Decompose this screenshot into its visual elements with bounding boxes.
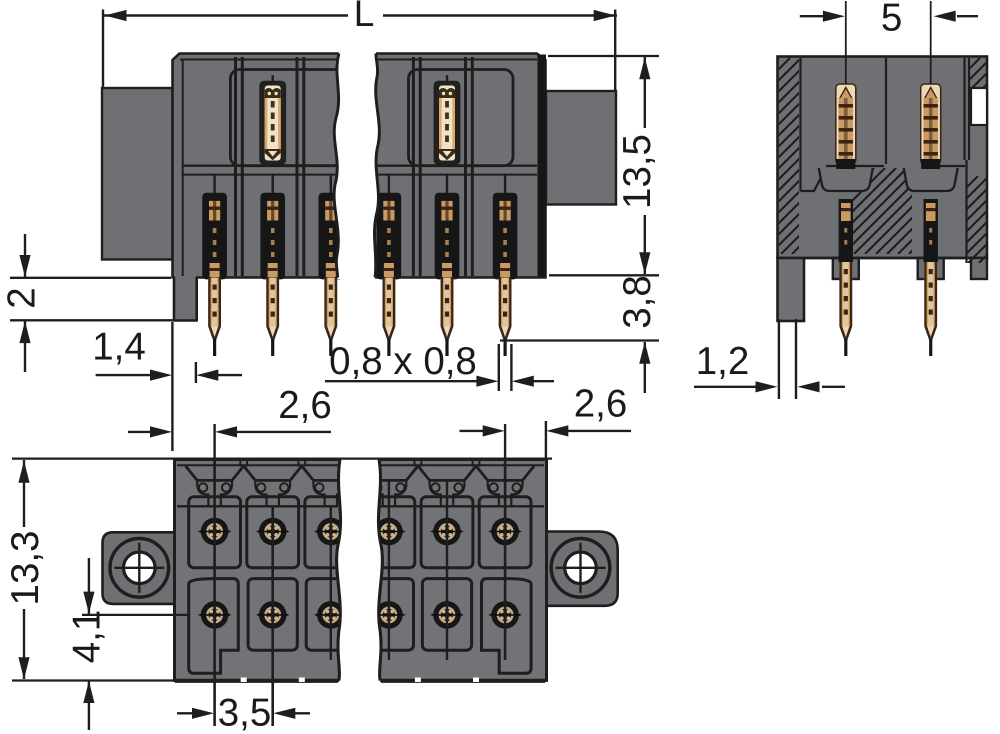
svg-text:1,2: 1,2 bbox=[696, 340, 750, 383]
svg-text:13,5: 13,5 bbox=[616, 134, 659, 209]
svg-text:3,8: 3,8 bbox=[616, 275, 659, 329]
svg-text:2,6: 2,6 bbox=[278, 384, 332, 427]
svg-text:5: 5 bbox=[881, 0, 902, 40]
svg-text:3,5: 3,5 bbox=[218, 692, 272, 734]
svg-text:1,4: 1,4 bbox=[92, 326, 146, 369]
svg-text:4,1: 4,1 bbox=[66, 610, 109, 664]
svg-text:2: 2 bbox=[1, 287, 44, 308]
svg-text:2,6: 2,6 bbox=[574, 383, 628, 426]
svg-text:L: L bbox=[354, 0, 375, 34]
svg-text:13,3: 13,3 bbox=[4, 531, 47, 606]
svg-text:0,8 x 0,8: 0,8 x 0,8 bbox=[329, 340, 477, 383]
